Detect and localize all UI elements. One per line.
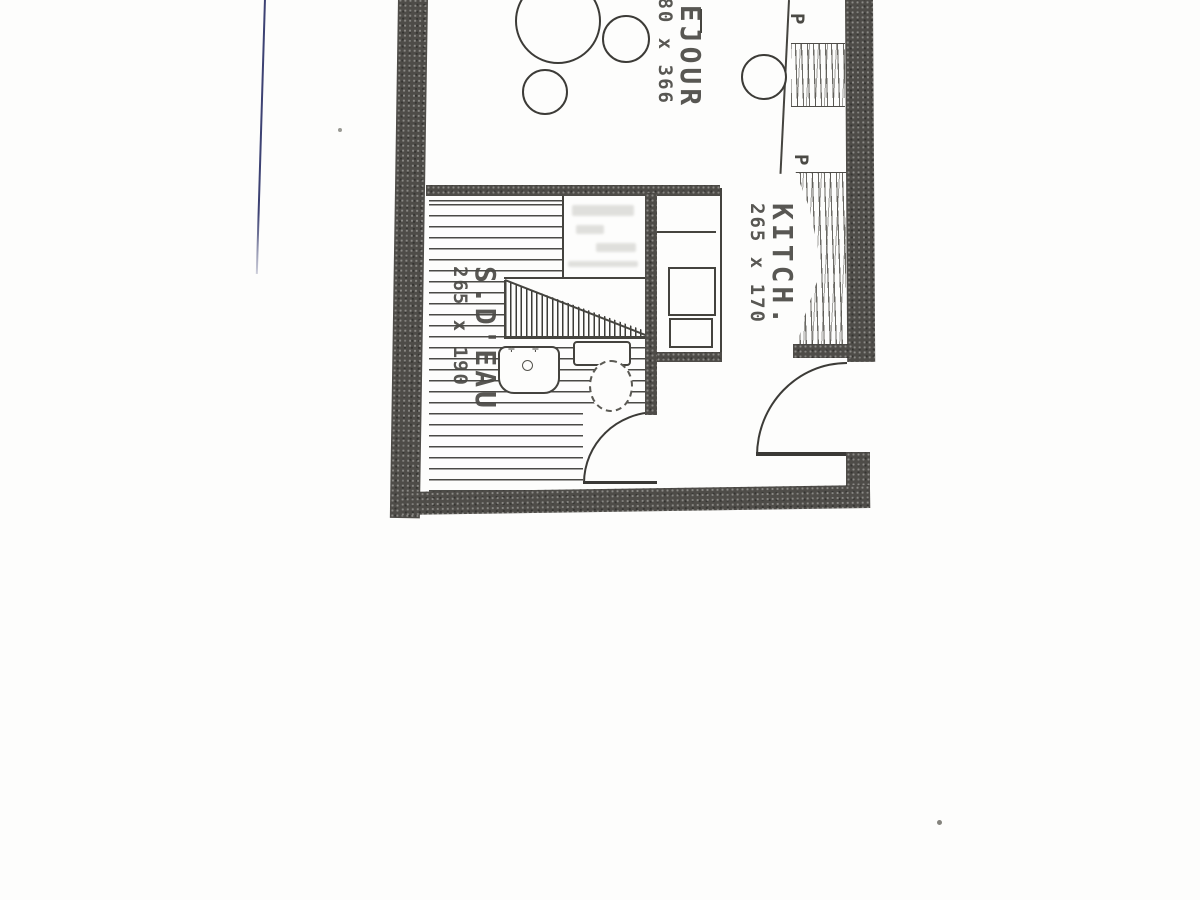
pen-mark-line [256,0,266,274]
shower-room-name: S.D'EAU [472,266,498,412]
scanned-floor-plan: ✛ ✛ P P SEJOUR 180 x 366 KITCH. 265 x 17… [0,0,1200,900]
stool [522,69,568,115]
kitchen-dimensions: 265 x 170 [745,203,769,328]
round-table [515,0,601,64]
closet-hanging-space-lower [794,172,846,353]
counter-divider [650,231,716,233]
entrance-door-leaf [756,452,847,456]
toilet-bowl [589,360,633,412]
faucet-icon: ✛ [532,344,539,354]
closet-label: P [790,154,812,165]
faucet-icon: ✛ [508,344,515,354]
basin-drain [522,360,533,371]
shower-screen-edge [504,277,649,279]
right-wall [845,0,875,362]
shower-screen-base [504,336,649,339]
counter-end-wall [651,352,722,362]
faint-stamp [568,261,638,267]
faint-stamp [572,205,634,216]
interior-wall-top [426,185,720,196]
sejour-dimensions: 180 x 366 [653,0,677,109]
washbasin: ✛ ✛ [498,346,560,394]
stool [602,15,650,63]
faint-stamp [576,225,604,234]
kitchen-sink-drainer [669,318,713,348]
interior-wall-vertical [645,193,657,415]
kitchen-stool [741,54,787,100]
shower-screen-left-edge [504,280,506,338]
entrance-door-arc [756,362,847,456]
scan-speck [338,128,342,132]
room-label-shower-room: S.D'EAU 265 x 190 [448,266,498,412]
shower-tray [562,193,648,281]
bathroom-door-leaf [583,481,657,484]
kitchen-name: KITCH. [769,203,795,328]
kitchen-sink-bowl [668,267,716,316]
faint-stamp [596,243,636,252]
room-label-sejour: SEJOUR 180 x 366 [653,0,703,109]
closet-hanging-space-upper [791,43,845,107]
closet-label: P [786,13,808,24]
scan-speck [937,820,942,825]
room-label-kitchen: KITCH. 265 x 170 [745,203,795,328]
left-wall [390,0,428,518]
sejour-name: SEJOUR [677,0,703,109]
closet-end-wall [793,344,852,358]
